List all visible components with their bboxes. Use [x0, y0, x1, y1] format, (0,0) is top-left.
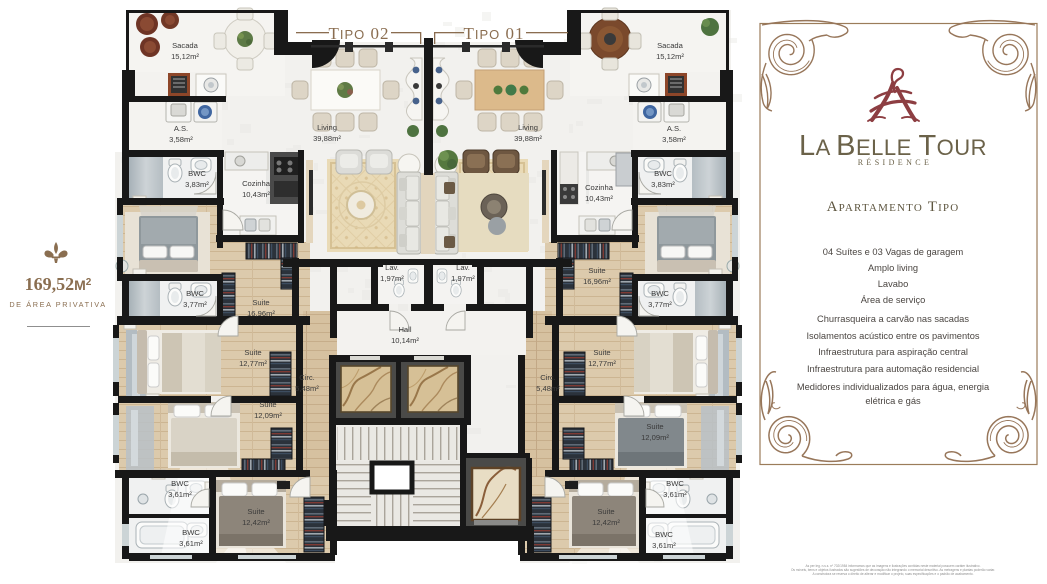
svg-text:12,77m²: 12,77m² — [239, 359, 267, 368]
svg-text:1,97m²: 1,97m² — [451, 274, 475, 283]
svg-text:39,88m²: 39,88m² — [313, 134, 341, 143]
svg-text:Lavabo: Lavabo — [878, 279, 909, 289]
svg-text:BWC: BWC — [182, 528, 200, 537]
svg-text:Apartamento Tipo: Apartamento Tipo — [827, 199, 960, 215]
svg-text:BWC: BWC — [654, 169, 672, 178]
svg-text:3,61m²: 3,61m² — [168, 490, 192, 499]
svg-text:3,58m²: 3,58m² — [662, 135, 686, 144]
svg-text:39,88m²: 39,88m² — [514, 134, 542, 143]
svg-text:Lav.: Lav. — [456, 263, 470, 272]
svg-text:A.S.: A.S. — [174, 124, 188, 133]
svg-text:3,61m²: 3,61m² — [663, 490, 687, 499]
svg-text:Living: Living — [317, 123, 337, 132]
svg-text:TIPO 01: TIPO 01 — [463, 24, 524, 43]
svg-text:04 Suítes e 03 Vagas de garage: 04 Suítes e 03 Vagas de garagem — [823, 247, 964, 257]
svg-text:3,77m²: 3,77m² — [648, 300, 672, 309]
svg-text:Cozinha: Cozinha — [585, 183, 614, 192]
svg-text:16,96m²: 16,96m² — [583, 277, 611, 286]
svg-text:Churrasqueira a carvão nas sac: Churrasqueira a carvão nas sacadas — [817, 314, 969, 324]
svg-text:3,61m²: 3,61m² — [652, 541, 676, 550]
svg-text:Circ.: Circ. — [299, 373, 315, 382]
svg-text:Medidores individualizados par: Medidores individualizados para água, en… — [797, 382, 990, 392]
svg-text:Isolamentos acústico entre os: Isolamentos acústico entre os pavimentos — [806, 331, 979, 341]
svg-text:BWC: BWC — [651, 289, 669, 298]
svg-text:A.S.: A.S. — [667, 124, 681, 133]
svg-text:Circ.: Circ. — [540, 373, 556, 382]
svg-text:12,09m²: 12,09m² — [641, 433, 669, 442]
svg-text:BWC: BWC — [186, 289, 204, 298]
svg-text:3,83m²: 3,83m² — [185, 180, 209, 189]
svg-text:3,83m²: 3,83m² — [651, 180, 675, 189]
svg-text:12,77m²: 12,77m² — [588, 359, 616, 368]
svg-text:DE ÁREA PRIVATIVA: DE ÁREA PRIVATIVA — [9, 300, 106, 309]
svg-text:Amplo living: Amplo living — [868, 263, 918, 273]
svg-text:12,42m²: 12,42m² — [592, 518, 620, 527]
svg-text:1,97m²: 1,97m² — [380, 274, 404, 283]
svg-text:RÉSIDENCE: RÉSIDENCE — [858, 157, 933, 167]
svg-text:12,42m²: 12,42m² — [242, 518, 270, 527]
svg-text:3,77m²: 3,77m² — [183, 300, 207, 309]
svg-text:Hall: Hall — [398, 325, 411, 334]
svg-text:Sacada: Sacada — [172, 41, 199, 50]
svg-text:BWC: BWC — [188, 169, 206, 178]
svg-text:BWC: BWC — [171, 479, 189, 488]
svg-text:5,48m²: 5,48m² — [536, 384, 560, 393]
svg-text:Suite: Suite — [252, 298, 269, 307]
svg-text:3,61m²: 3,61m² — [179, 539, 203, 548]
svg-text:Suite: Suite — [588, 266, 605, 275]
svg-text:Suite: Suite — [247, 507, 264, 516]
svg-text:TIPO 02: TIPO 02 — [328, 24, 389, 43]
svg-text:Infraestrutura para aspiração: Infraestrutura para aspiração central — [818, 347, 968, 357]
svg-text:Suite: Suite — [646, 422, 663, 431]
svg-text:15,12m²: 15,12m² — [171, 52, 199, 61]
svg-text:10,43m²: 10,43m² — [242, 190, 270, 199]
svg-text:169,52M2: 169,52M2 — [25, 274, 92, 294]
svg-text:Living: Living — [518, 123, 538, 132]
svg-text:Cozinha: Cozinha — [242, 179, 271, 188]
svg-text:Sacada: Sacada — [657, 41, 684, 50]
svg-text:16,96m²: 16,96m² — [247, 309, 275, 318]
svg-text:10,14m²: 10,14m² — [391, 336, 419, 345]
svg-text:15,12m²: 15,12m² — [656, 52, 684, 61]
svg-text:10,43m²: 10,43m² — [585, 194, 613, 203]
svg-text:BWC: BWC — [655, 530, 673, 539]
svg-text:Lav.: Lav. — [385, 263, 399, 272]
svg-text:Suite: Suite — [259, 400, 276, 409]
svg-text:Suite: Suite — [597, 507, 614, 516]
svg-text:Área de serviço: Área de serviço — [861, 295, 926, 305]
svg-text:BWC: BWC — [666, 479, 684, 488]
svg-text:elétrica e gás: elétrica e gás — [865, 396, 921, 406]
svg-text:A construtora se reserva o dir: A construtora se reserva o direito de al… — [812, 572, 973, 576]
svg-text:Suite: Suite — [244, 348, 261, 357]
svg-text:Infraestrutura para automação: Infraestrutura para automação residencia… — [807, 364, 979, 374]
svg-text:Suite: Suite — [593, 348, 610, 357]
svg-text:3,58m²: 3,58m² — [169, 135, 193, 144]
svg-text:5,48m²: 5,48m² — [295, 384, 319, 393]
svg-text:12,09m²: 12,09m² — [254, 411, 282, 420]
